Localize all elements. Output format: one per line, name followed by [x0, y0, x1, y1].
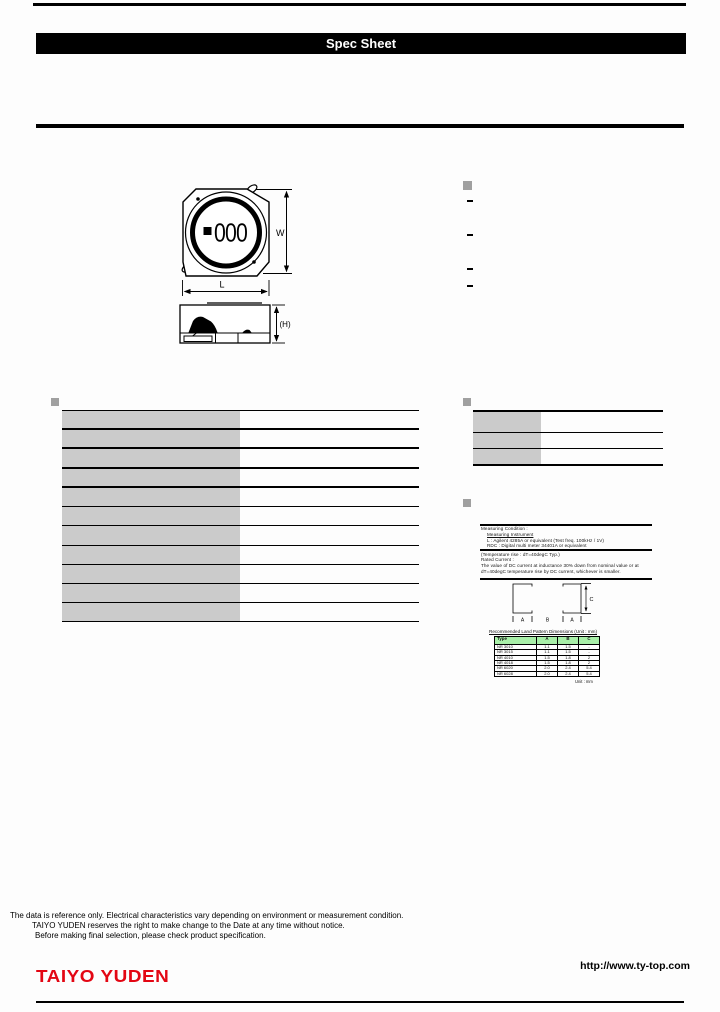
land-table-cell: 2.0 — [536, 666, 557, 670]
section-bullet-notes — [463, 499, 471, 507]
land-table-cell: NR 3015 — [495, 650, 536, 654]
land-table-cell: 2 — [578, 661, 599, 665]
spec-label-cell — [62, 488, 240, 506]
part-label-cell — [473, 449, 541, 464]
feature-dash — [467, 234, 473, 236]
land-pattern-caption: Recommended Land Pattern Dimensions (Uni… — [489, 629, 597, 634]
part-value-cell — [541, 433, 663, 449]
spec-label-cell — [62, 430, 240, 447]
feature-dash — [467, 285, 473, 287]
land-table-cell: 1.5 — [536, 656, 557, 660]
land-table-cell: NR 3010 — [495, 645, 536, 649]
part-table — [473, 410, 663, 466]
table-row — [62, 430, 419, 449]
land-table-header-cell: B — [557, 637, 578, 644]
feature-dash — [467, 268, 473, 270]
land-table-cell: 1.8 — [557, 656, 578, 660]
land-table-cell: NR 6028 — [495, 672, 536, 676]
table-row — [62, 526, 419, 545]
spec-label-cell — [62, 546, 240, 564]
part-label-cell — [473, 412, 541, 432]
land-pattern-table: TypeABCNR 30101.11.5-NR 30151.11.5-NR 40… — [494, 636, 600, 677]
spec-value-cell — [240, 411, 419, 428]
land-table-cell: 1.5 — [557, 650, 578, 654]
dim-label-l: L — [219, 280, 224, 290]
land-table-header-row: TypeABC — [495, 637, 599, 644]
spec-value-cell — [240, 603, 419, 621]
spec-sheet-page: Spec Sheet 000 W — [0, 0, 720, 1012]
spec-value-cell — [240, 488, 419, 506]
table-row — [62, 603, 419, 622]
spec-table — [62, 410, 419, 622]
land-table-cell: 1.5 — [536, 661, 557, 665]
header-divider — [36, 124, 684, 128]
taiyo-yuden-logo: TAIYO YUDEN — [36, 966, 169, 987]
land-table-cell: 5.4 — [578, 666, 599, 670]
land-table-cell: 2.4 — [557, 666, 578, 670]
section-bullet-spec — [51, 398, 59, 406]
land-pad-left — [513, 584, 532, 613]
land-table-cell: 1.1 — [536, 645, 557, 649]
land-pad-right — [563, 584, 581, 613]
table-row — [62, 507, 419, 526]
table-row — [62, 584, 419, 603]
spec-label-cell — [62, 565, 240, 583]
spec-value-cell — [240, 546, 419, 564]
land-table-cell: - — [578, 650, 599, 654]
part-value-cell — [541, 412, 663, 432]
spec-value-cell — [240, 469, 419, 486]
spec-value-cell — [240, 526, 419, 544]
land-table-cell: 5.4 — [578, 672, 599, 676]
land-pattern-footnote: Unit : mm — [575, 679, 593, 684]
title-banner: Spec Sheet — [36, 33, 686, 54]
section-bullet-features — [463, 181, 472, 190]
table-row — [62, 411, 419, 430]
top-rule — [33, 3, 686, 6]
notes-rule-mid — [480, 549, 652, 551]
table-row: NR 40101.51.82 — [495, 655, 599, 660]
terminal-electrode — [184, 336, 212, 342]
feature-dash — [467, 200, 473, 202]
spec-label-cell — [62, 507, 240, 525]
spec-value-cell — [240, 565, 419, 583]
footer-rule — [36, 1001, 684, 1003]
land-table-header-cell: C — [578, 637, 599, 644]
table-row — [473, 412, 663, 433]
part-marking: 000 — [214, 218, 247, 248]
part-label-cell — [473, 433, 541, 449]
dim-label-w: W — [276, 228, 285, 238]
table-row — [62, 546, 419, 565]
land-table-header-cell: A — [536, 637, 557, 644]
side-view: (H) — [180, 303, 291, 343]
spec-label-cell — [62, 526, 240, 544]
page-title: Spec Sheet — [326, 36, 396, 51]
table-row — [62, 449, 419, 468]
land-table-cell: 2.0 — [536, 672, 557, 676]
spec-label-cell — [62, 469, 240, 486]
part-drawing: 000 W L (H) — [160, 172, 310, 352]
table-row — [62, 469, 419, 488]
table-row: NR 60202.02.45.4 — [495, 665, 599, 670]
land-table-header-cell: Type — [495, 637, 536, 644]
land-table-cell: 2.4 — [557, 672, 578, 676]
land-table-cell: 1.5 — [557, 645, 578, 649]
table-row: NR 40181.51.82 — [495, 660, 599, 665]
land-table-cell: NR 6020 — [495, 666, 536, 670]
land-table-cell: 1.8 — [557, 661, 578, 665]
spec-value-cell — [240, 584, 419, 602]
spec-label-cell — [62, 603, 240, 621]
land-table-cell: NR 4010 — [495, 656, 536, 660]
top-view: 000 W L — [181, 183, 292, 296]
spec-label-cell — [62, 584, 240, 602]
table-row — [473, 449, 663, 464]
table-row: NR 60282.02.45.4 — [495, 671, 599, 676]
dim-label-c: C — [590, 597, 594, 603]
note-line: dT=40degC temperature rise by DC current… — [481, 569, 656, 575]
polarity-mark — [204, 227, 212, 235]
table-row: NR 30101.11.5- — [495, 644, 599, 649]
land-table-cell: 2 — [578, 656, 599, 660]
orientation-dot — [252, 260, 256, 264]
company-url[interactable]: http://www.ty-top.com — [580, 960, 690, 972]
part-value-cell — [541, 449, 663, 464]
spec-label-cell — [62, 411, 240, 428]
notes-block-2: (Temperature rise : dT=40degC Typ.)Rated… — [481, 552, 656, 575]
disclaimer-line-3: Before making final selection, please ch… — [35, 931, 266, 940]
orientation-dot — [196, 197, 200, 201]
dim-label-a2: A — [570, 618, 574, 624]
dim-label-h: (H) — [280, 320, 291, 329]
land-table-cell: NR 4018 — [495, 661, 536, 665]
section-bullet-part — [463, 398, 471, 406]
land-table-cell: 1.1 — [536, 650, 557, 654]
notes-block-1: Measuring Condition :Measuring Instrumen… — [481, 526, 656, 549]
spec-label-cell — [62, 449, 240, 466]
table-row — [62, 565, 419, 584]
dim-label-a1: A — [521, 618, 525, 624]
disclaimer-line-1: The data is reference only. Electrical c… — [10, 911, 403, 920]
dim-label-b: B — [546, 618, 550, 624]
table-row: NR 30151.11.5- — [495, 649, 599, 654]
spec-value-cell — [240, 507, 419, 525]
spec-value-cell — [240, 449, 419, 466]
table-row — [62, 488, 419, 507]
spec-value-cell — [240, 430, 419, 447]
land-pattern-drawing: C A B A — [500, 580, 610, 626]
land-table-cell: - — [578, 645, 599, 649]
table-row — [473, 433, 663, 450]
disclaimer-line-2: TAIYO YUDEN reserves the right to make c… — [32, 921, 345, 930]
